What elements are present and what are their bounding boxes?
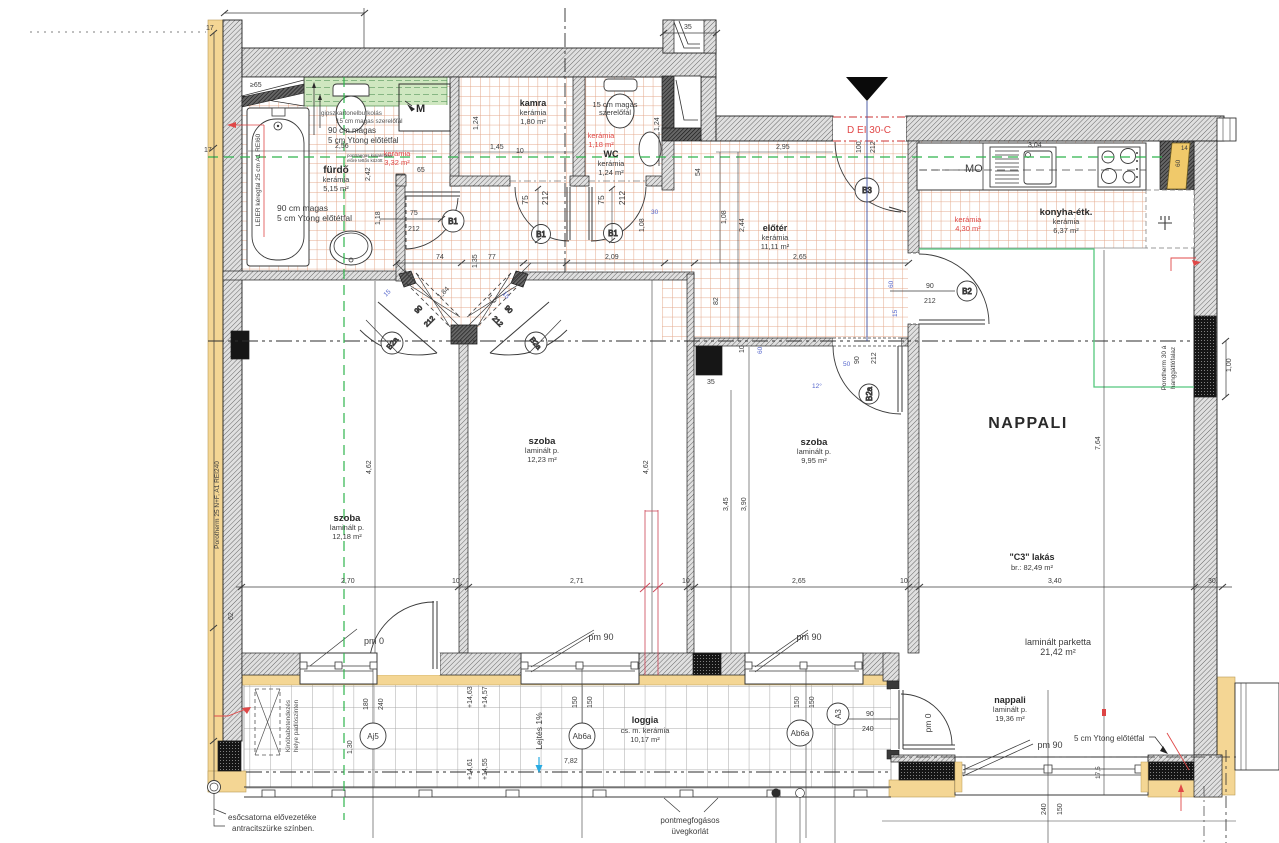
svg-text:2,95: 2,95 <box>776 144 790 151</box>
svg-text:30: 30 <box>1208 578 1216 585</box>
svg-text:212: 212 <box>617 191 627 205</box>
svg-text:150: 150 <box>809 696 816 708</box>
svg-text:NAPPALI: NAPPALI <box>988 415 1068 432</box>
svg-text:4,62: 4,62 <box>643 460 650 474</box>
svg-text:+14,63: +14,63 <box>467 686 474 708</box>
svg-text:gipszkartonelburkolás: gipszkartonelburkolás <box>321 110 382 117</box>
svg-text:90: 90 <box>854 356 861 364</box>
svg-text:10: 10 <box>900 578 908 585</box>
svg-text:62: 62 <box>228 612 235 620</box>
svg-text:B1: B1 <box>536 230 546 239</box>
svg-text:10: 10 <box>739 345 746 353</box>
svg-text:pm 0: pm 0 <box>923 713 933 732</box>
svg-text:1,18 m²: 1,18 m² <box>588 140 614 149</box>
svg-text:Lejtés 1%: Lejtés 1% <box>534 712 544 750</box>
svg-text:15 cm magas szerelőfál: 15 cm magas szerelőfál <box>336 118 403 125</box>
svg-text:21,42 m²: 21,42 m² <box>1040 647 1076 657</box>
svg-text:60: 60 <box>757 346 764 354</box>
svg-text:50: 50 <box>843 361 851 368</box>
svg-text:előtér: előtér <box>763 223 788 233</box>
svg-text:35: 35 <box>684 24 692 31</box>
svg-text:pm 90: pm 90 <box>796 632 821 642</box>
svg-text:4,30 m²: 4,30 m² <box>955 224 981 233</box>
svg-text:laminált p.: laminált p. <box>330 523 364 532</box>
svg-text:1,24: 1,24 <box>473 116 480 130</box>
svg-text:35: 35 <box>707 379 715 386</box>
svg-text:90 cm magas: 90 cm magas <box>328 126 376 135</box>
svg-text:7,82: 7,82 <box>564 758 578 765</box>
svg-text:3,40: 3,40 <box>1048 578 1062 585</box>
svg-text:M: M <box>416 103 425 115</box>
svg-text:150: 150 <box>572 696 579 708</box>
svg-text:1,24: 1,24 <box>654 117 661 131</box>
svg-text:2,65: 2,65 <box>793 254 807 261</box>
svg-text:150: 150 <box>587 696 594 708</box>
svg-text:1,30: 1,30 <box>347 740 354 754</box>
svg-text:6,37 m²: 6,37 m² <box>1053 226 1079 235</box>
svg-text:2,65: 2,65 <box>792 578 806 585</box>
svg-text:3,45: 3,45 <box>723 497 730 511</box>
svg-text:180: 180 <box>363 698 370 710</box>
svg-text:2,09: 2,09 <box>605 254 619 261</box>
svg-text:75: 75 <box>596 195 606 205</box>
svg-text:19,36 m²: 19,36 m² <box>995 714 1025 723</box>
svg-text:12°: 12° <box>812 382 822 390</box>
svg-text:cs. m. kerámia: cs. m. kerámia <box>621 726 671 735</box>
svg-text:240: 240 <box>1041 803 1048 815</box>
svg-text:5 cm Ytong előtétfal: 5 cm Ytong előtétfal <box>1074 734 1145 743</box>
svg-text:240: 240 <box>378 698 385 710</box>
svg-text:30: 30 <box>651 209 659 216</box>
svg-text:12,23 m²: 12,23 m² <box>527 455 557 464</box>
svg-text:1,18: 1,18 <box>375 211 382 225</box>
svg-text:pm 0: pm 0 <box>364 636 384 646</box>
svg-text:11,11 m²: 11,11 m² <box>761 242 790 251</box>
svg-text:90: 90 <box>926 283 934 290</box>
svg-text:helye padlószinten: helye padlószinten <box>293 699 300 752</box>
svg-text:75: 75 <box>410 210 418 217</box>
svg-text:15: 15 <box>892 309 899 317</box>
svg-text:kerámia: kerámia <box>588 131 616 140</box>
svg-text:1,45: 1,45 <box>490 144 504 151</box>
svg-text:212: 212 <box>408 226 420 233</box>
svg-text:1,24 m²: 1,24 m² <box>598 168 624 177</box>
svg-text:"C3" lakás: "C3" lakás <box>1009 552 1054 562</box>
svg-text:3,32 m²: 3,32 m² <box>384 158 410 167</box>
svg-text:előre tettős között: előre tettős között <box>347 158 383 163</box>
svg-text:hanggátlófalaz: hanggátlófalaz <box>1170 347 1177 389</box>
svg-text:1,80 m²: 1,80 m² <box>520 117 546 126</box>
svg-text:17: 17 <box>204 147 212 154</box>
svg-text:laminált p.: laminált p. <box>993 705 1027 714</box>
svg-text:szerelőfál: szerelőfál <box>599 108 631 117</box>
svg-text:kamra: kamra <box>520 98 548 108</box>
svg-text:esőcsatorna elővezetéke: esőcsatorna elővezetéke <box>228 813 317 822</box>
svg-text:10,17 m²: 10,17 m² <box>630 735 660 744</box>
svg-text:90: 90 <box>866 711 874 718</box>
svg-text:100: 100 <box>856 141 863 153</box>
svg-text:212: 212 <box>870 141 877 153</box>
svg-text:Porotherm 30 á: Porotherm 30 á <box>1161 345 1168 390</box>
svg-text:212: 212 <box>924 298 936 305</box>
svg-text:LEIER kéregfal 25 cm A1 REI60: LEIER kéregfal 25 cm A1 REI60 <box>255 133 262 226</box>
svg-text:14: 14 <box>1181 146 1188 152</box>
svg-text:1,08: 1,08 <box>639 218 646 232</box>
svg-text:17: 17 <box>206 25 214 32</box>
svg-text:laminált parketta: laminált parketta <box>1025 637 1091 647</box>
svg-text:60: 60 <box>888 280 895 288</box>
svg-text:B2: B2 <box>962 287 972 296</box>
svg-text:WC: WC <box>604 149 619 159</box>
svg-text:90 cm magas: 90 cm magas <box>277 203 328 213</box>
svg-text:Aj5: Aj5 <box>367 732 379 741</box>
svg-text:7,64: 7,64 <box>1095 436 1102 450</box>
svg-text:10: 10 <box>682 578 690 585</box>
svg-text:9,95 m²: 9,95 m² <box>801 456 827 465</box>
svg-text:+14,61: +14,61 <box>467 758 474 780</box>
svg-text:Ab6a: Ab6a <box>791 729 810 738</box>
svg-text:5,15 m²: 5,15 m² <box>323 184 349 193</box>
svg-text:pontmegfogásos: pontmegfogásos <box>660 816 719 825</box>
svg-text:54: 54 <box>695 168 702 176</box>
svg-text:17,5: 17,5 <box>1095 766 1102 779</box>
svg-text:üvegkorlát: üvegkorlát <box>672 827 710 836</box>
svg-text:1,35: 1,35 <box>472 254 479 268</box>
svg-text:2,44: 2,44 <box>739 218 746 232</box>
svg-text:laminált p.: laminált p. <box>525 446 559 455</box>
svg-text:150: 150 <box>794 696 801 708</box>
svg-text:D EI 30-C: D EI 30-C <box>847 125 891 136</box>
svg-text:≥65: ≥65 <box>250 82 262 89</box>
svg-text:150: 150 <box>1057 803 1064 815</box>
svg-text:nappali: nappali <box>994 695 1026 705</box>
svg-text:2,70: 2,70 <box>341 578 355 585</box>
svg-text:B1: B1 <box>448 217 458 226</box>
svg-text:10: 10 <box>516 148 524 155</box>
svg-text:3,04: 3,04 <box>1028 142 1042 149</box>
svg-text:12,18 m²: 12,18 m² <box>332 532 362 541</box>
svg-text:Ab6a: Ab6a <box>573 732 592 741</box>
svg-text:212: 212 <box>540 191 550 205</box>
svg-text:1,00: 1,00 <box>1226 358 1233 372</box>
svg-text:kerámia: kerámia <box>520 108 548 117</box>
svg-text:212: 212 <box>871 352 878 364</box>
svg-text:B1: B1 <box>608 229 618 238</box>
svg-text:br.: 82,49 m²: br.: 82,49 m² <box>1011 563 1054 572</box>
svg-text:75: 75 <box>520 195 530 205</box>
svg-text:74: 74 <box>436 254 444 261</box>
svg-text:kerámia: kerámia <box>1053 217 1081 226</box>
svg-text:82: 82 <box>713 297 720 305</box>
svg-text:77: 77 <box>488 254 496 261</box>
svg-text:5 cm Ytong előtétfal: 5 cm Ytong előtétfal <box>277 213 352 223</box>
svg-text:Kinóbabetendezés: Kinóbabetendezés <box>285 700 292 752</box>
svg-text:kerámia: kerámia <box>762 233 790 242</box>
svg-text:+14,57: +14,57 <box>482 686 489 708</box>
svg-text:5 cm Ytong előtétfal: 5 cm Ytong előtétfal <box>328 136 399 145</box>
svg-text:3,90: 3,90 <box>741 497 748 511</box>
svg-text:Porotherm 25 N+F, A1 REI240: Porotherm 25 N+F, A1 REI240 <box>214 461 221 549</box>
svg-text:loggia: loggia <box>632 715 659 725</box>
svg-text:60: 60 <box>1175 159 1182 167</box>
svg-text:4,62: 4,62 <box>366 460 373 474</box>
svg-text:+14,55: +14,55 <box>482 758 489 780</box>
svg-text:1,08: 1,08 <box>721 210 728 224</box>
svg-text:kerámia: kerámia <box>323 175 351 184</box>
svg-text:240: 240 <box>862 726 874 733</box>
svg-text:2,71: 2,71 <box>570 578 584 585</box>
svg-text:kerámia: kerámia <box>598 159 626 168</box>
svg-text:B2a: B2a <box>865 386 874 401</box>
svg-text:2,42: 2,42 <box>365 167 372 181</box>
svg-text:pm 90: pm 90 <box>588 632 613 642</box>
svg-text:kerámia: kerámia <box>955 215 983 224</box>
svg-text:A3: A3 <box>834 709 843 719</box>
svg-text:MO: MO <box>965 163 983 175</box>
svg-text:antracitszürke színben.: antracitszürke színben. <box>232 824 314 833</box>
svg-text:10: 10 <box>452 578 460 585</box>
svg-text:laminált p.: laminált p. <box>797 447 831 456</box>
svg-text:pm 90: pm 90 <box>1037 740 1062 750</box>
svg-text:65: 65 <box>417 167 425 174</box>
